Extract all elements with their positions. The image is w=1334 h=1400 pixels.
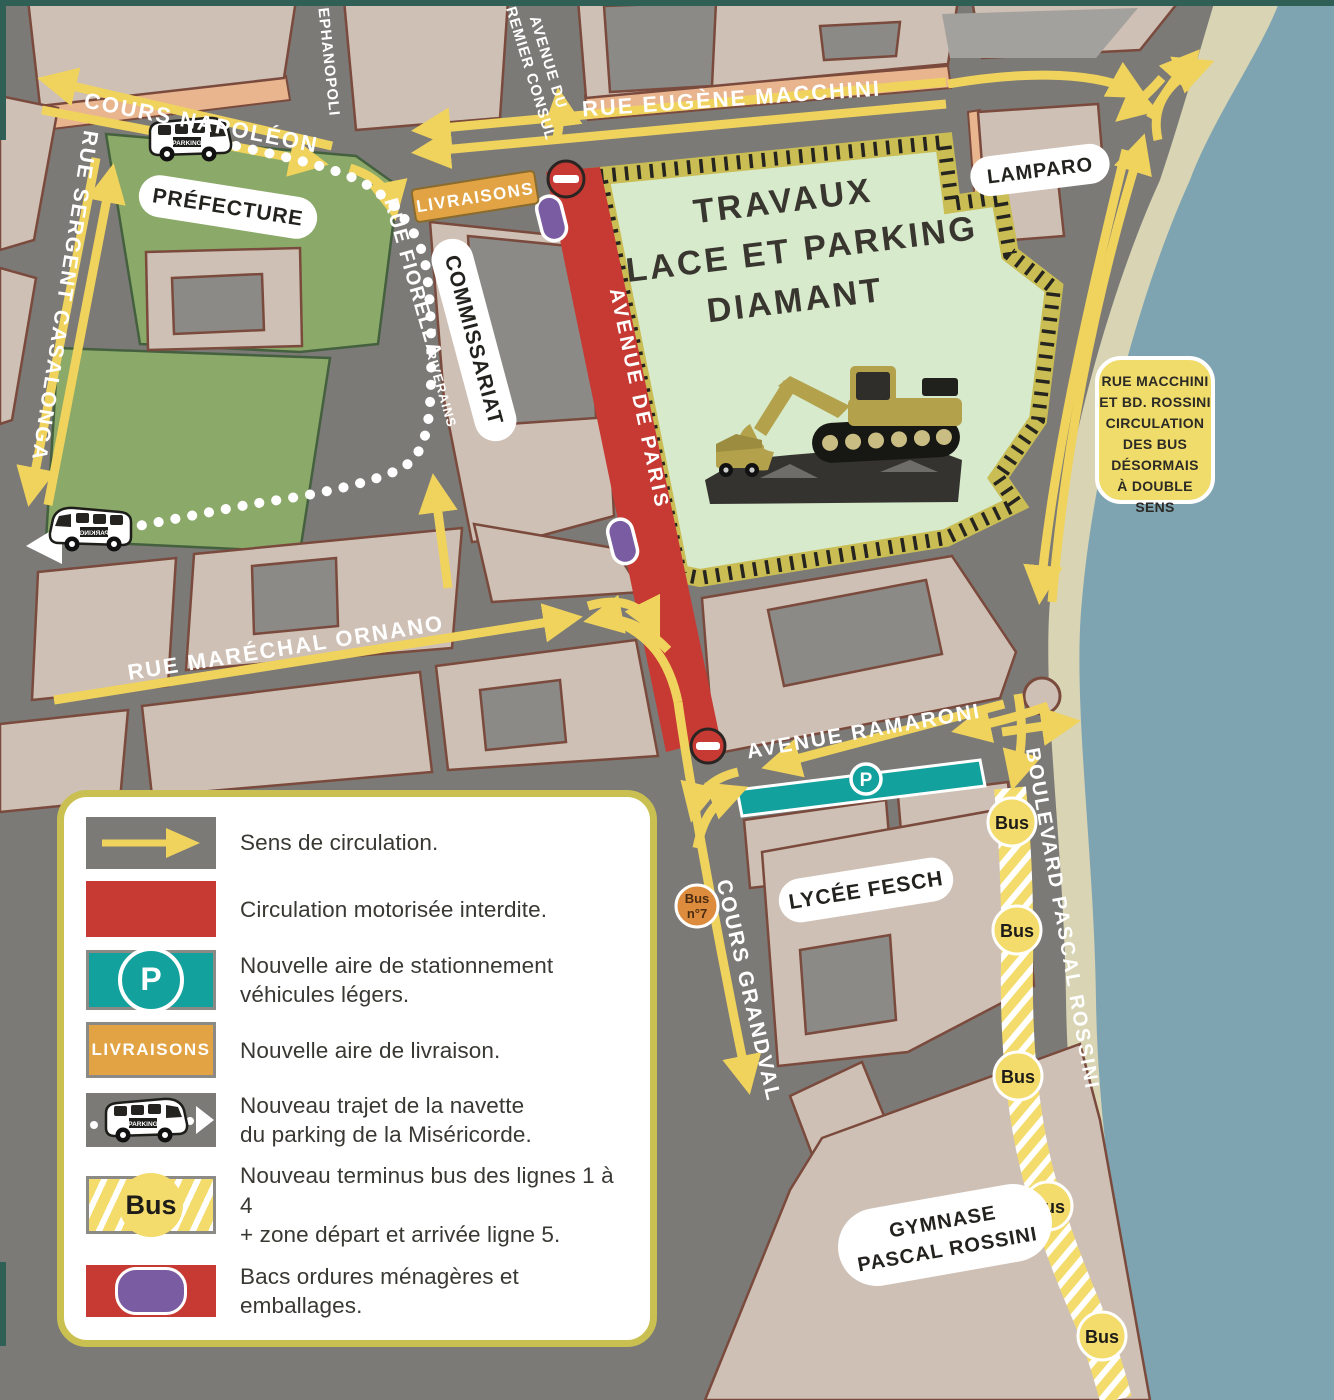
legend-label: Nouvelle aire de stationnement véhicules…	[240, 951, 553, 1010]
parking-badge-label: P	[860, 770, 873, 791]
direction-arrow-icon	[86, 817, 216, 869]
bus-line7-label: Bus	[685, 891, 710, 906]
bins-swatch	[86, 1265, 216, 1317]
bus-line7-label: n°7	[687, 906, 707, 921]
traffic-map: PARKING	[0, 0, 1334, 1400]
notice-line: DES BUS	[1099, 434, 1211, 455]
no-entry-icon	[691, 729, 725, 763]
legend-row-bus-terminus: Bus Nouveau terminus bus des lignes 1 à …	[86, 1161, 628, 1249]
notice-line: RUE MACCHINI	[1099, 371, 1211, 392]
legend-row-bins: Bacs ordures ménagères et emballages.	[86, 1262, 628, 1321]
building-block	[0, 268, 36, 424]
bus-circulation-notice: RUE MACCHINI ET BD. ROSSINI CIRCULATION …	[1095, 356, 1215, 504]
notice-line: ET BD. ROSSINI	[1099, 392, 1211, 413]
building-block	[142, 672, 432, 796]
legend-label: Nouvelle aire de livraison.	[240, 1036, 500, 1065]
delivery-area-badge: LIVRAISONS	[411, 170, 539, 222]
legend-label: Nouveau terminus bus des lignes 1 à 4 + …	[240, 1161, 628, 1249]
legend-panel: Sens de circulation. Circulation motoris…	[57, 790, 657, 1347]
legend-label: Sens de circulation.	[240, 828, 438, 857]
bus-stop-label: Bus	[1000, 921, 1034, 941]
legend-row-shuttle: Nouveau trajet de la navette du parking …	[86, 1091, 628, 1150]
notice-line: À DOUBLE SENS	[1099, 476, 1211, 518]
building-block	[344, 0, 508, 130]
shuttle-swatch	[86, 1093, 216, 1147]
delivery-swatch: LIVRAISONS	[86, 1022, 216, 1078]
legend-row-parking: P Nouvelle aire de stationnement véhicul…	[86, 950, 628, 1010]
bus-stop-label: Bus	[995, 813, 1029, 833]
bus-line7-badge: Bus n°7	[676, 885, 718, 927]
legend-row-direction: Sens de circulation.	[86, 817, 628, 869]
legend-label: Nouveau trajet de la navette du parking …	[240, 1091, 532, 1150]
bus-stop-badge: Bus	[988, 798, 1036, 846]
street-label-stephanopoli: STEPHANOPOLI	[312, 0, 343, 117]
no-entry-icon	[548, 161, 584, 197]
bus-stop-badge: Bus	[994, 1052, 1042, 1100]
parking-badge: P	[851, 764, 881, 794]
legend-row-delivery: LIVRAISONS Nouvelle aire de livraison.	[86, 1022, 628, 1078]
bus-stop-badge: Bus	[1078, 1312, 1126, 1360]
bus-terminus-swatch: Bus	[86, 1176, 216, 1234]
legend-label: Circulation motorisée interdite.	[240, 895, 547, 924]
building-block	[0, 96, 58, 250]
bus-stop-label: Bus	[1085, 1327, 1119, 1347]
closed-road-swatch	[86, 881, 216, 937]
legend-label: Bacs ordures ménagères et emballages.	[240, 1262, 628, 1321]
notice-line: DÉSORMAIS	[1099, 455, 1211, 476]
parking-icon: P	[118, 947, 184, 1013]
bus-stop-label: Bus	[1001, 1067, 1035, 1087]
notice-line: CIRCULATION	[1099, 413, 1211, 434]
parking-swatch: P	[86, 950, 216, 1010]
bus-icon: Bus	[119, 1173, 183, 1237]
legend-row-no-motor: Circulation motorisée interdite.	[86, 881, 628, 937]
waste-bin-icon	[115, 1267, 187, 1315]
bus-stop-badge: Bus	[993, 906, 1041, 954]
shuttle-van-icon	[50, 508, 131, 552]
